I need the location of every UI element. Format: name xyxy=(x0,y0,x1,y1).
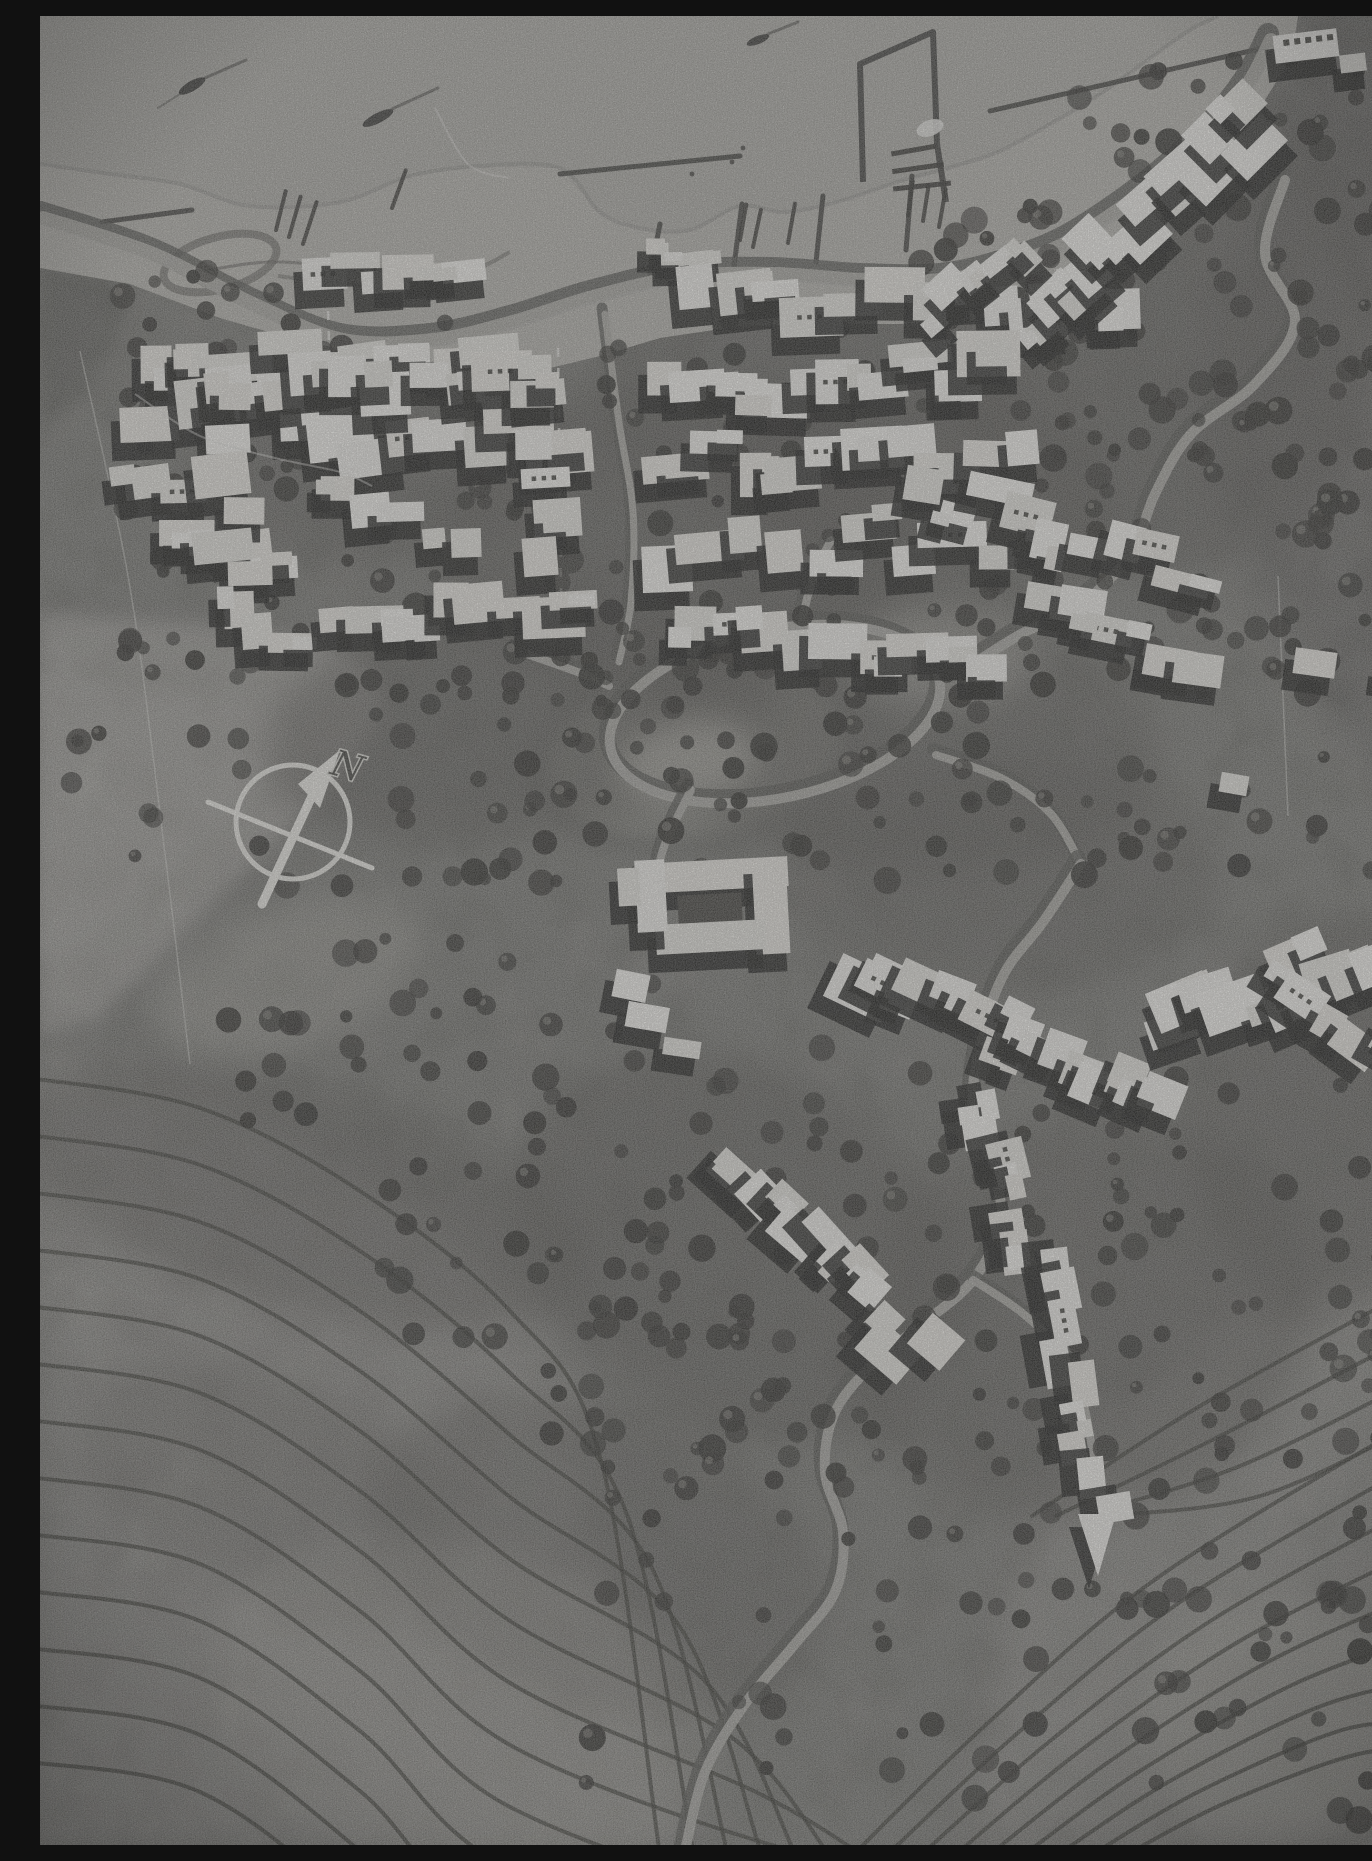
photo-canvas: N xyxy=(40,16,1372,1845)
site-model-scene: N xyxy=(40,16,1372,1845)
film-artifacts xyxy=(40,16,1372,1845)
aerial-site-model-photo: N N xyxy=(40,16,1372,1845)
